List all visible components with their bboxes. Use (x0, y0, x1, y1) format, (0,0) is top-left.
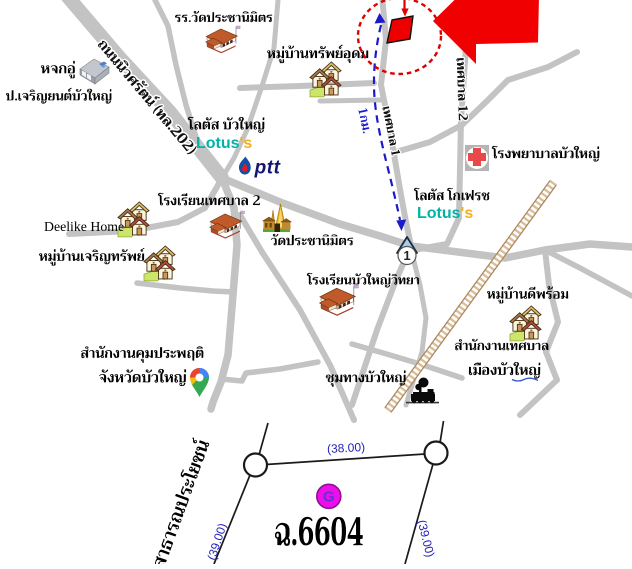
svg-text:G: G (323, 489, 335, 506)
svg-text:(38.00): (38.00) (327, 440, 366, 456)
svg-text:ptt: ptt (254, 158, 281, 179)
svg-text:1: 1 (403, 248, 410, 263)
svg-text:Deelike Home: Deelike Home (44, 219, 124, 234)
svg-text:Lotus's: Lotus's (196, 135, 252, 152)
svg-text:Lotus's: Lotus's (417, 205, 473, 222)
